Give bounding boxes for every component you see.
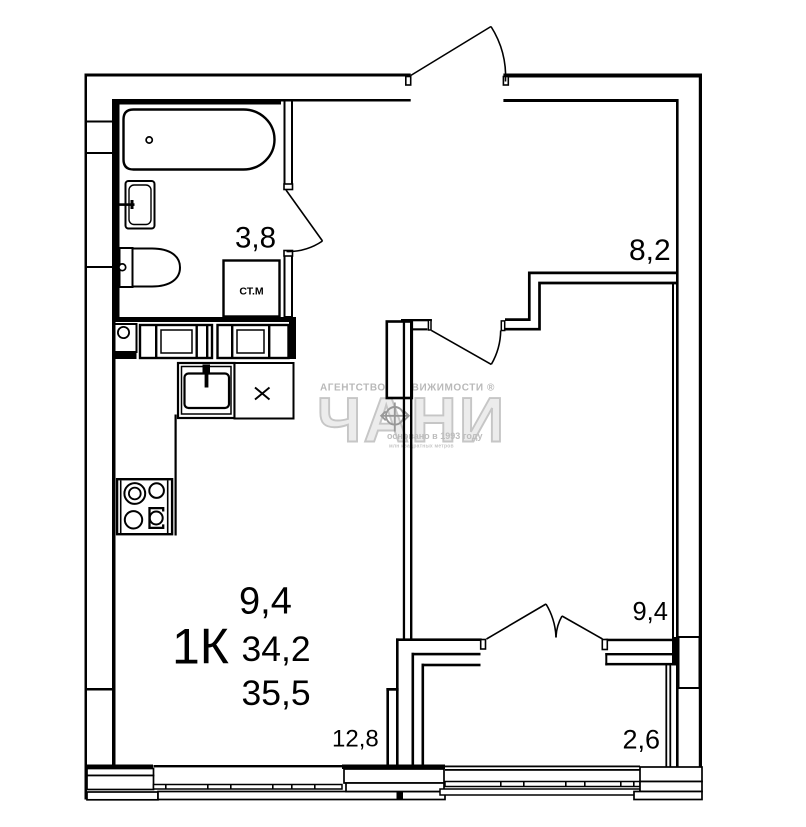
svg-text:35,5: 35,5 bbox=[242, 673, 311, 713]
svg-text:1К: 1К bbox=[172, 619, 229, 675]
svg-text:3,8: 3,8 bbox=[235, 222, 276, 255]
svg-text:8,2: 8,2 bbox=[629, 234, 671, 267]
svg-text:9,4: 9,4 bbox=[239, 581, 292, 623]
svg-text:основано в 1993 году: основано в 1993 году bbox=[387, 431, 483, 441]
svg-text:12,8: 12,8 bbox=[332, 726, 379, 753]
svg-text:млн квадратных метров: млн квадратных метров bbox=[389, 444, 454, 450]
svg-text:2,6: 2,6 bbox=[623, 725, 661, 755]
svg-text:СТ.М: СТ.М bbox=[239, 286, 263, 298]
svg-text:9,4: 9,4 bbox=[633, 598, 668, 626]
svg-text:34,2: 34,2 bbox=[242, 629, 311, 669]
